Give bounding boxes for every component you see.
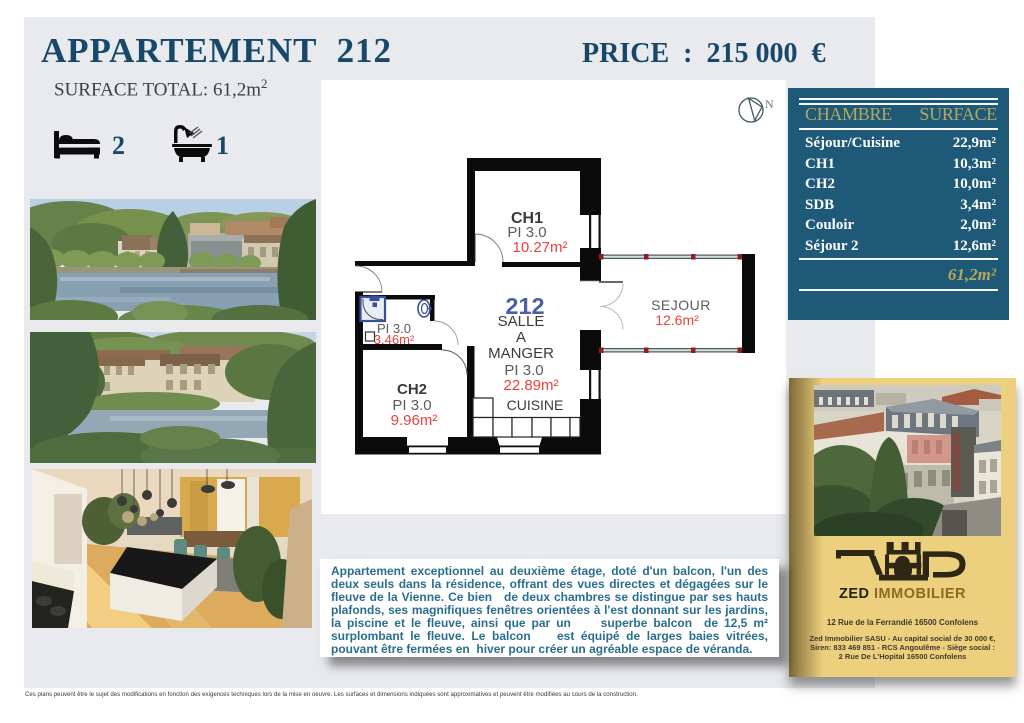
svg-text:12.6m²: 12.6m²	[655, 312, 699, 328]
svg-text:SEJOUR: SEJOUR	[651, 297, 711, 313]
svg-text:10.27m²: 10.27m²	[512, 239, 567, 256]
svg-text:N: N	[765, 97, 774, 111]
svg-text:3.46m²: 3.46m²	[374, 332, 415, 347]
svg-text:MANGER: MANGER	[488, 345, 554, 362]
svg-text:22.89m²: 22.89m²	[503, 377, 558, 394]
svg-text:A: A	[516, 329, 526, 346]
svg-text:9.96m²: 9.96m²	[391, 412, 438, 429]
svg-text:CUISINE: CUISINE	[507, 397, 564, 413]
svg-text:SALLE: SALLE	[498, 313, 545, 330]
svg-text:CH2: CH2	[397, 381, 427, 398]
